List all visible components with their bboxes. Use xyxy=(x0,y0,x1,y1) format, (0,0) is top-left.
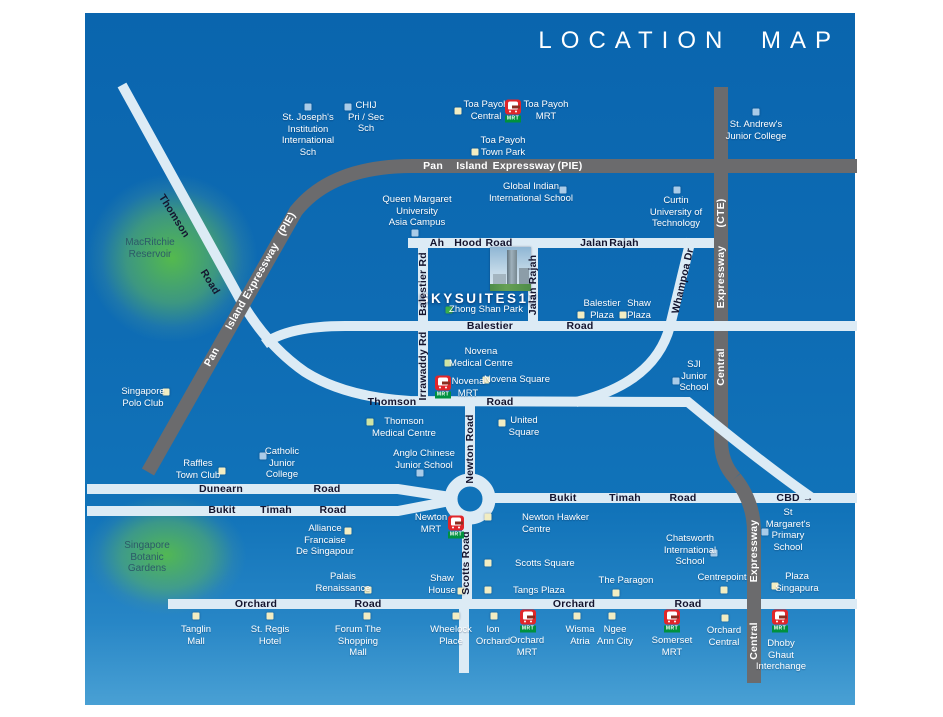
toa-payoh-central-marker xyxy=(455,108,462,115)
label-line: Singapore xyxy=(121,386,164,398)
label-line: Reservoir xyxy=(125,249,174,261)
label-line: Forum The xyxy=(335,624,381,636)
label-line: Thomson xyxy=(372,416,436,428)
st-margarets-primary-school-label: StMargaret'sPrimarySchool xyxy=(766,507,811,553)
label-line: University of xyxy=(650,207,702,219)
orchard-mrt-icon: MRT xyxy=(520,610,536,633)
curtin-university-of-technology-label: CurtinUniversity ofTechnology xyxy=(650,195,702,230)
novena-medical-centre-label: NovenaMedical Centre xyxy=(449,346,513,369)
mrt-badge: MRT xyxy=(772,626,788,633)
road-label-expressway: Expressway xyxy=(715,246,727,309)
tanglin-mall-marker xyxy=(193,613,200,620)
road-label-thomson: Thomson xyxy=(368,396,417,408)
mrt-badge: MRT xyxy=(664,626,680,633)
road-label-expressway: Expressway xyxy=(493,160,556,172)
label-line: MacRitchie xyxy=(125,237,174,249)
road-label-road: Road xyxy=(674,598,701,610)
label-line: International xyxy=(664,545,716,557)
label-line: Atria xyxy=(565,636,594,648)
label-line: Centre xyxy=(522,524,589,536)
road-label-road: Road xyxy=(566,320,593,332)
label-line: MRT xyxy=(415,524,447,536)
wheelock-place-label: WheelockPlace xyxy=(430,624,472,647)
label-line: Sch xyxy=(348,123,384,135)
label-line: Curtin xyxy=(650,195,702,207)
train-icon xyxy=(772,610,788,625)
label-line: Novena xyxy=(449,346,513,358)
label-line: Catholic xyxy=(265,446,299,458)
label-line: Palais xyxy=(316,571,371,583)
page-title: LOCATION MAP xyxy=(530,27,840,55)
label-line: Novena Square xyxy=(484,374,550,386)
label-line: Junior xyxy=(265,458,299,470)
label-line: MRT xyxy=(452,388,485,400)
label-line: Tangs Plaza xyxy=(513,585,565,597)
train-window-icon xyxy=(671,616,679,619)
road-label-ah: Ah xyxy=(430,237,444,249)
label-line: Technology xyxy=(650,218,702,230)
label-line: Junior xyxy=(679,371,708,383)
label-line: Ann City xyxy=(597,636,633,648)
singapore-botanic-gardens-label: SingaporeBotanicGardens xyxy=(124,540,170,575)
label-line: Hotel xyxy=(251,636,290,648)
train-icon xyxy=(505,100,521,115)
st-andrews-junior-college-label: St. Andrew'sJunior College xyxy=(726,119,787,142)
train-body-icon xyxy=(438,378,448,386)
road-label-bukit: Bukit xyxy=(208,504,235,516)
label-line: CHIJ xyxy=(348,100,384,112)
forum-the-shopping-mall-label: Forum TheShoppingMall xyxy=(335,624,381,659)
label-line: The Paragon xyxy=(599,575,654,587)
label-line: Town Club xyxy=(176,470,220,482)
label-line: Raffles xyxy=(176,458,220,470)
road-label-jalan-rajah: Jalan Rajah xyxy=(527,255,539,316)
the-paragon-label: The Paragon xyxy=(599,575,654,587)
plaza-singapura-label: PlazaSingapura xyxy=(775,571,818,594)
label-line: Scotts Square xyxy=(515,558,575,570)
shaw-plaza-marker xyxy=(620,312,627,319)
road-label-pan: Pan xyxy=(423,160,443,172)
label-line: Shopping xyxy=(335,636,381,648)
road-label-irrawaddy-rd: Irrawaddy Rd xyxy=(417,332,429,401)
road-label-expressway: Expressway xyxy=(748,520,760,583)
sji-junior-school-label: SJIJuniorSchool xyxy=(679,359,708,394)
road-label-road: Road xyxy=(485,237,512,249)
label-line: Alliance xyxy=(296,523,354,535)
sji-junior-school-marker xyxy=(673,378,680,385)
road-label-road: Road xyxy=(319,504,346,516)
train-icon xyxy=(448,516,464,531)
wheelock-place-marker xyxy=(453,613,460,620)
anglo-chinese-junior-school-label: Anglo ChineseJunior School xyxy=(393,448,455,471)
road-label-road: Road xyxy=(313,483,340,495)
label-line: Somerset xyxy=(652,635,693,647)
road-label-road: Road xyxy=(354,598,381,610)
label-line: Zhong Shan Park xyxy=(449,304,523,316)
train-window-icon xyxy=(512,106,520,109)
centrepoint-marker xyxy=(721,587,728,594)
road-dunearn xyxy=(87,489,450,497)
road-label-balestier: Balestier xyxy=(467,320,513,332)
balestier-plaza-label: BalestierPlaza xyxy=(584,298,621,321)
wisma-atria-label: WismaAtria xyxy=(565,624,594,647)
dhoby-ghaut-interchange-icon: MRT xyxy=(772,610,788,633)
label-line: Toa Payoh xyxy=(464,99,509,111)
st-regis-hotel-label: St. RegisHotel xyxy=(251,624,290,647)
train-window-icon xyxy=(455,522,463,525)
road-label-road: Road xyxy=(486,396,513,408)
train-body-icon xyxy=(451,518,461,526)
label-line: Mall xyxy=(181,636,211,648)
building-tower-icon xyxy=(507,250,517,288)
road-label-balestier-rd: Balestier Rd xyxy=(417,252,429,316)
st-josephs-institution-marker xyxy=(305,104,312,111)
queen-margaret-university-marker xyxy=(412,230,419,237)
thomson-medical-centre-label: ThomsonMedical Centre xyxy=(372,416,436,439)
tangs-plaza-label: Tangs Plaza xyxy=(513,585,565,597)
ion-orchard-label: IonOrchard xyxy=(476,624,510,647)
label-line: Shaw xyxy=(428,573,455,585)
scotts-square-marker xyxy=(485,560,492,567)
label-line: Plaza xyxy=(775,571,818,583)
road-label-timah: Timah xyxy=(260,504,292,516)
road-label-orchard: Orchard xyxy=(553,598,595,610)
st-josephs-institution-label: St. Joseph'sInstitutionInternationalSch xyxy=(282,112,334,158)
location-map: SKYSUITES17 MacRitchieReservoirSingapore… xyxy=(0,0,943,717)
label-line: International School xyxy=(489,193,573,205)
label-line: Institution xyxy=(282,124,334,136)
label-line: Newton xyxy=(415,512,447,524)
label-line: Medical Centre xyxy=(449,358,513,370)
road-label-road: Road xyxy=(669,492,696,504)
toa-payoh-mrt-icon: MRT xyxy=(505,100,521,123)
label-line: St. Joseph's xyxy=(282,112,334,124)
novena-mrt-label: NovenaMRT xyxy=(452,376,485,399)
train-icon xyxy=(435,376,451,391)
newton-mrt-icon: MRT xyxy=(448,516,464,539)
catholic-junior-college-label: CatholicJuniorCollege xyxy=(265,446,299,481)
label-line: MRT xyxy=(510,647,544,659)
label-line: Tanglin xyxy=(181,624,211,636)
label-line: St. Regis xyxy=(251,624,290,636)
chij-pri-sec-sch-label: CHIJPri / SecSch xyxy=(348,100,384,135)
label-line: House xyxy=(428,585,455,597)
road-label-cbd: CBD → xyxy=(776,492,813,504)
mrt-badge: MRT xyxy=(435,392,451,399)
label-line: Singapura xyxy=(775,583,818,595)
label-line: Renaissance xyxy=(316,583,371,595)
road-label-dunearn: Dunearn xyxy=(199,483,243,495)
road-label-cte: (CTE) xyxy=(715,199,727,228)
label-line: Wisma xyxy=(565,624,594,636)
label-line: Square xyxy=(509,427,540,439)
road-label-scotts-road: Scotts Road xyxy=(460,531,472,594)
train-window-icon xyxy=(779,616,787,619)
label-line: School xyxy=(679,382,708,394)
label-line: Dhoby xyxy=(756,638,806,650)
orchard-central-marker xyxy=(722,615,729,622)
label-line: Ion xyxy=(476,624,510,636)
wisma-atria-marker xyxy=(574,613,581,620)
label-line: Plaza xyxy=(627,310,651,322)
scotts-square-label: Scotts Square xyxy=(515,558,575,570)
global-indian-international-school-label: Global IndianInternational School xyxy=(489,181,573,204)
curtin-university-of-technology-marker xyxy=(674,187,681,194)
label-line: Global Indian xyxy=(489,181,573,193)
skysuites-building-image xyxy=(490,247,531,291)
forum-the-shopping-mall-marker xyxy=(364,613,371,620)
label-line: University xyxy=(382,206,451,218)
mrt-badge: MRT xyxy=(520,626,536,633)
label-line: De Singapour xyxy=(296,546,354,558)
tanglin-mall-label: TanglinMall xyxy=(181,624,211,647)
label-line: Margaret's xyxy=(766,519,811,531)
dhoby-ghaut-interchange-label: DhobyGhautInterchange xyxy=(756,638,806,673)
toa-payoh-mrt-label: Toa PayohMRT xyxy=(524,99,569,122)
label-line: Orchard xyxy=(707,625,741,637)
road-label-newton-road: Newton Road xyxy=(464,414,476,483)
tangs-plaza-marker xyxy=(485,587,492,594)
label-line: Newton Hawker xyxy=(522,512,589,524)
label-line: Ngee xyxy=(597,624,633,636)
label-line: St. Andrew's xyxy=(726,119,787,131)
label-line: Toa Payoh xyxy=(524,99,569,111)
label-line: Shaw xyxy=(627,298,651,310)
palais-renaissance-label: PalaisRenaissance xyxy=(316,571,371,594)
train-body-icon xyxy=(667,612,677,620)
label-line: Sch xyxy=(282,147,334,159)
label-line: School xyxy=(766,542,811,554)
shaw-plaza-label: ShawPlaza xyxy=(627,298,651,321)
newton-circus-roundabout xyxy=(451,480,489,518)
label-line: Centrepoint xyxy=(697,572,746,584)
road-label-island: Island xyxy=(456,160,488,172)
label-line: Medical Centre xyxy=(372,428,436,440)
somerset-mrt-label: SomersetMRT xyxy=(652,635,693,658)
novena-mrt-icon: MRT xyxy=(435,376,451,399)
mrt-badge: MRT xyxy=(505,116,521,123)
label-line: Primary xyxy=(766,530,811,542)
label-line: Central xyxy=(464,111,509,123)
label-line: Town Park xyxy=(481,147,526,159)
united-square-label: UnitedSquare xyxy=(509,415,540,438)
road-label-jalan: Jalan xyxy=(580,237,608,249)
macritchie-reservoir-label: MacRitchieReservoir xyxy=(125,237,174,260)
label-line: Novena xyxy=(452,376,485,388)
the-paragon-marker xyxy=(613,590,620,597)
toa-payoh-central-label: Toa PayohCentral xyxy=(464,99,509,122)
train-icon xyxy=(664,610,680,625)
road-label-hood: Hood xyxy=(454,237,482,249)
alliance-francaise-de-singapour-label: AllianceFrancaiseDe Singapour xyxy=(296,523,354,558)
label-line: MRT xyxy=(524,111,569,123)
mrt-badge: MRT xyxy=(448,532,464,539)
label-line: SJI xyxy=(679,359,708,371)
st-regis-hotel-marker xyxy=(267,613,274,620)
label-line: MRT xyxy=(652,647,693,659)
label-line: Interchange xyxy=(756,661,806,673)
toa-payoh-town-park-label: Toa PayohTown Park xyxy=(481,135,526,158)
label-line: Francaise xyxy=(296,535,354,547)
label-line: Orchard xyxy=(510,635,544,647)
chatsworth-international-school-label: ChatsworthInternationalSchool xyxy=(664,533,716,568)
train-window-icon xyxy=(442,382,450,385)
label-line: Junior College xyxy=(726,131,787,143)
train-icon xyxy=(520,610,536,625)
newton-hawker-centre-label: Newton HawkerCentre xyxy=(522,512,589,535)
centrepoint-label: Centrepoint xyxy=(697,572,746,584)
label-line: Balestier xyxy=(584,298,621,310)
zhong-shan-park-label: Zhong Shan Park xyxy=(449,304,523,316)
road-balestier xyxy=(264,326,857,344)
label-line: Singapore xyxy=(124,540,170,552)
label-line: Botanic xyxy=(124,552,170,564)
label-line: Ghaut xyxy=(756,650,806,662)
label-line: International xyxy=(282,135,334,147)
label-line: Place xyxy=(430,636,472,648)
novena-square-label: Novena Square xyxy=(484,374,550,386)
raffles-town-club-label: RafflesTown Club xyxy=(176,458,220,481)
train-body-icon xyxy=(775,612,785,620)
ngee-ann-city-label: NgeeAnn City xyxy=(597,624,633,647)
road-label-pie: (PIE) xyxy=(558,160,583,172)
train-body-icon xyxy=(523,612,533,620)
road-label-rajah: Rajah xyxy=(609,237,639,249)
label-line: St xyxy=(766,507,811,519)
road-label-bukit: Bukit xyxy=(549,492,576,504)
label-line: School xyxy=(664,556,716,568)
singapore-polo-club-label: SingaporePolo Club xyxy=(121,386,164,409)
train-window-icon xyxy=(527,616,535,619)
shaw-house-label: ShawHouse xyxy=(428,573,455,596)
united-square-marker xyxy=(499,420,506,427)
label-line: Wheelock xyxy=(430,624,472,636)
label-line: Toa Payoh xyxy=(481,135,526,147)
label-line: Chatsworth xyxy=(664,533,716,545)
label-line: Asia Campus xyxy=(382,217,451,229)
label-line: Pri / Sec xyxy=(348,112,384,124)
label-line: Junior School xyxy=(393,460,455,472)
toa-payoh-town-park-marker xyxy=(472,149,479,156)
ngee-ann-city-marker xyxy=(609,613,616,620)
label-line: Central xyxy=(707,637,741,649)
label-line: United xyxy=(509,415,540,427)
newton-mrt-label: NewtonMRT xyxy=(415,512,447,535)
label-line: Anglo Chinese xyxy=(393,448,455,460)
label-line: Polo Club xyxy=(121,398,164,410)
ion-orchard-marker xyxy=(491,613,498,620)
orchard-central-label: OrchardCentral xyxy=(707,625,741,648)
train-body-icon xyxy=(508,102,518,110)
label-line: Queen Margaret xyxy=(382,194,451,206)
label-line: Mall xyxy=(335,647,381,659)
queen-margaret-university-label: Queen MargaretUniversityAsia Campus xyxy=(382,194,451,229)
label-line: College xyxy=(265,469,299,481)
somerset-mrt-icon: MRT xyxy=(664,610,680,633)
orchard-mrt-label: OrchardMRT xyxy=(510,635,544,658)
building-park-strip xyxy=(490,284,531,291)
road-label-timah: Timah xyxy=(609,492,641,504)
newton-hawker-centre-marker xyxy=(485,514,492,521)
st-andrews-junior-college-marker xyxy=(753,109,760,116)
label-line: Orchard xyxy=(476,636,510,648)
road-label-orchard: Orchard xyxy=(235,598,277,610)
label-line: Gardens xyxy=(124,563,170,575)
road-label-central: Central xyxy=(715,348,727,386)
